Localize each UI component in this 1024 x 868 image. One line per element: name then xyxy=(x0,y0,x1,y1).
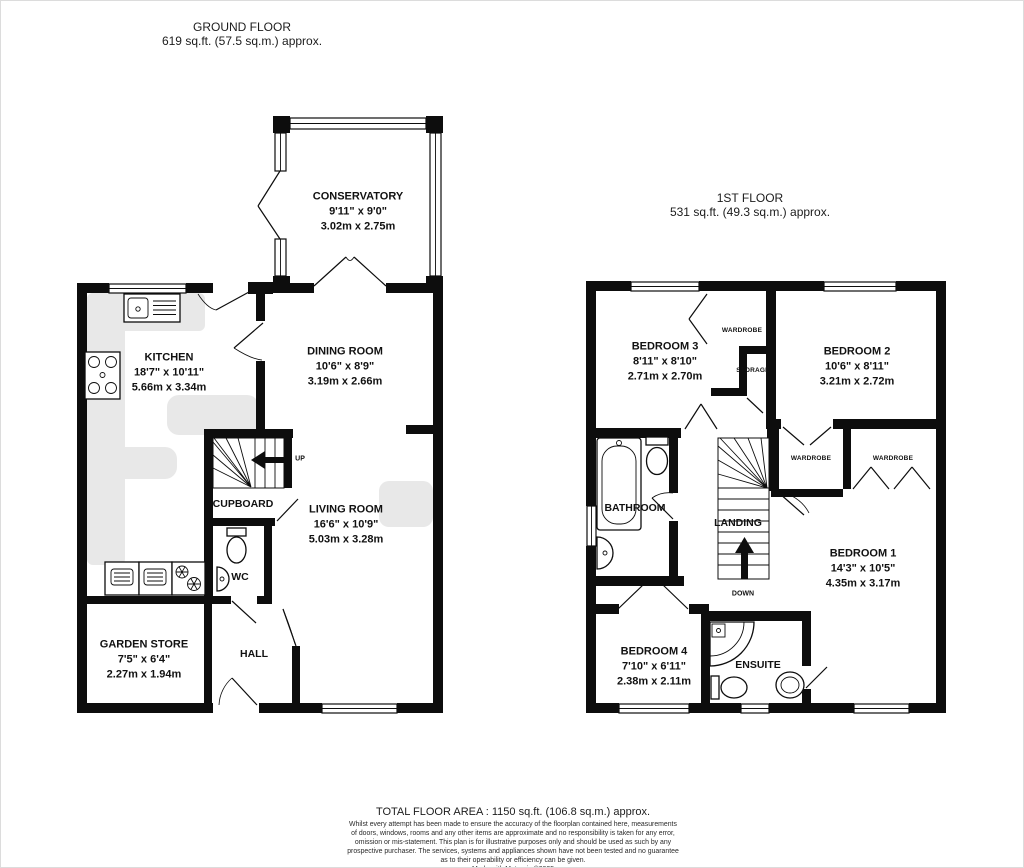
room-label-landing: LANDING xyxy=(714,517,762,529)
disclaimer-line: of doors, windows, rooms and any other i… xyxy=(347,830,679,839)
ensuite-basin-icon xyxy=(776,672,804,698)
total-floor-area: TOTAL FLOOR AREA : 1150 sq.ft. (106.8 sq… xyxy=(376,806,650,818)
floorplan-graphics xyxy=(1,1,1024,868)
room-label-garden-store: GARDEN STORE 7'5" x 6'4" 2.27m x 1.94m xyxy=(100,638,188,683)
washer-icon xyxy=(105,562,139,595)
disclaimer-line: prospective purchaser. The services, sys… xyxy=(347,848,679,857)
bathroom-basin-icon xyxy=(597,537,613,569)
room-label-wc: WC xyxy=(231,571,249,583)
room-label-bathroom: BATHROOM xyxy=(604,502,665,514)
room-label-ensuite: ENSUITE xyxy=(735,659,781,671)
room-label-conservatory: CONSERVATORY 9'11" x 9'0" 3.02m x 2.75m xyxy=(313,190,403,235)
wc-basin-icon xyxy=(217,567,229,591)
disclaimer-line: omission or mis-statement. This plan is … xyxy=(347,839,679,848)
room-label-dining-room: DINING ROOM 10'6" x 8'9" 3.19m x 2.66m xyxy=(307,345,383,390)
room-label-kitchen: KITCHEN 18'7" x 10'11" 5.66m x 3.34m xyxy=(132,351,207,396)
room-label-cupboard: CUPBOARD xyxy=(213,498,274,510)
disclaimer-line: as to their operability or efficiency ca… xyxy=(347,857,679,866)
room-label-bedroom-2: BEDROOM 2 10'6" x 8'11" 3.21m x 2.72m xyxy=(820,345,895,390)
first-floor-title-text: 1ST FLOOR xyxy=(670,191,830,205)
bathroom-toilet-icon xyxy=(646,437,668,475)
ground-floor-title: GROUND FLOOR 619 sq.ft. (57.5 sq.m.) app… xyxy=(162,20,322,48)
ensuite-toilet-icon xyxy=(711,676,747,699)
living-room-accent xyxy=(379,481,433,527)
washer-icon-2 xyxy=(139,562,172,595)
gf-stairs-icon xyxy=(213,438,289,488)
bath-icon xyxy=(597,438,641,530)
first-floor-area-text: 531 sq.ft. (49.3 sq.m.) approx. xyxy=(670,205,830,219)
ff-stairs-icon xyxy=(718,438,769,579)
wardrobe-label-top: WARDROBE xyxy=(722,327,762,335)
disclaimer-line: Whilst every attempt has been made to en… xyxy=(347,821,679,830)
wardrobe-label-left: WARDROBE xyxy=(791,455,831,463)
sink-icon xyxy=(124,294,180,322)
ground-floor-area-text: 619 sq.ft. (57.5 sq.m.) approx. xyxy=(162,34,322,48)
wardrobe-label-right: WARDROBE xyxy=(873,455,913,463)
stairs-down-label: DOWN xyxy=(732,591,754,598)
floorplan-page: GROUND FLOOR 619 sq.ft. (57.5 sq.m.) app… xyxy=(0,0,1024,868)
room-label-bedroom-1: BEDROOM 1 14'3" x 10'5" 4.35m x 3.17m xyxy=(826,547,901,592)
stairs-up-label: UP xyxy=(295,456,305,463)
hob-icon xyxy=(85,352,120,399)
storage-label: STORAGE xyxy=(736,367,769,375)
room-label-hall: HALL xyxy=(240,648,268,660)
disclaimer: Whilst every attempt has been made to en… xyxy=(347,821,679,868)
room-label-bedroom-3: BEDROOM 3 8'11" x 8'10" 2.71m x 2.70m xyxy=(628,340,703,385)
room-label-living-room: LIVING ROOM 16'6" x 10'9" 5.03m x 3.28m xyxy=(309,503,384,548)
ground-floor-title-text: GROUND FLOOR xyxy=(162,20,322,34)
room-label-bedroom-4: BEDROOM 4 7'10" x 6'11" 2.38m x 2.11m xyxy=(617,645,691,690)
first-floor-title: 1ST FLOOR 531 sq.ft. (49.3 sq.m.) approx… xyxy=(670,191,830,219)
wc-toilet-icon xyxy=(227,528,246,563)
freezer-icon xyxy=(172,562,205,595)
